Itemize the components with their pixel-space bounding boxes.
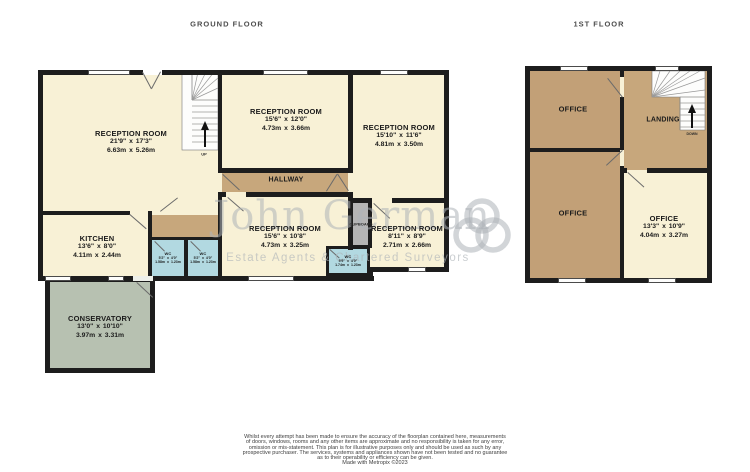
room-label-cupboard: CUPBOARD [349, 222, 372, 227]
stairs-down-icon [650, 66, 707, 136]
room-label-reception2: RECEPTION ROOM 15'6" x 12'0" 4.73m x 3.6… [250, 107, 322, 133]
room-label-landing: LANDING [646, 117, 679, 126]
window [408, 267, 426, 272]
room-label-reception3: RECEPTION ROOM 15'10" x 11'6" 4.81m x 3.… [363, 123, 435, 149]
room-label-reception5: RECEPTION ROOM 8'11" x 8'9" 2.71m x 2.66… [371, 224, 443, 250]
wall-segment [620, 71, 624, 77]
wall-segment [43, 211, 130, 215]
wall-segment [218, 192, 222, 281]
disclaimer: Whilst every attempt has been made to en… [0, 435, 750, 467]
wall-segment [348, 70, 353, 173]
wall-segment [38, 70, 43, 281]
room-label-hallway: HALLWAY [269, 177, 304, 186]
window [655, 66, 679, 71]
room-label-conservatory: CONSERVATORY 13'0" x 10'10" 3.97m x 3.31… [68, 314, 132, 340]
room-label-wc-left2: WC 5'2" x 4'0" 1.58m x 1.23m [190, 251, 216, 265]
wall-segment [620, 166, 624, 278]
exterior-mask [373, 272, 453, 284]
room-label-office-right: OFFICE 13'3" x 10'9" 4.04m x 3.27m [640, 214, 688, 240]
floorplan-page: GROUND FLOOR 1ST FLOOR [0, 0, 750, 472]
window [248, 276, 294, 281]
room-label-office-top: OFFICE [559, 104, 588, 113]
window [560, 66, 588, 71]
room-label-reception4: RECEPTION ROOM 15'6" x 10'8" 4.73m x 3.2… [249, 224, 321, 250]
window [108, 276, 124, 281]
room-label-wc-middle: WC 5'9" x 4'0" 1.74m x 1.23m [335, 254, 361, 268]
wall-segment [525, 278, 712, 283]
stairs-down-label: DOWN [686, 132, 697, 136]
wall-segment [620, 97, 624, 150]
wall-segment [444, 70, 449, 272]
room-label-reception1: RECEPTION ROOM 21'9" x 17'3" 6.63m x 5.2… [95, 129, 167, 155]
wall-segment [38, 276, 374, 281]
disclaimer-credit: Made with Metropix ©2023 [0, 461, 750, 466]
room-label-office-bottom: OFFICE [559, 208, 588, 217]
wall-segment [218, 70, 222, 173]
window [88, 70, 130, 75]
room-fill-wc-lobby [152, 215, 218, 237]
window [648, 278, 676, 283]
wall-segment [222, 192, 226, 197]
stairs-up-icon [180, 70, 220, 154]
wall-segment [246, 192, 352, 197]
window [45, 276, 71, 281]
room-label-kitchen: KITCHEN 13'6" x 8'0" 4.11m x 2.44m [73, 234, 121, 260]
window [263, 70, 308, 75]
wall-segment [647, 168, 707, 173]
wall-segment [222, 168, 352, 173]
wall-segment [530, 148, 620, 152]
wall-segment [392, 198, 444, 203]
ground-floor-title: GROUND FLOOR [190, 20, 264, 29]
wall-segment [148, 211, 152, 281]
stairs-up-label: UP [201, 152, 207, 157]
wall-segment [368, 267, 373, 281]
wall-segment [184, 240, 188, 276]
wall-segment [525, 66, 712, 71]
first-floor-title: 1ST FLOOR [573, 20, 624, 29]
door-opening [133, 276, 153, 281]
wall-segment [707, 66, 712, 283]
room-label-wc-left1: WC 5'2" x 4'0" 1.58m x 1.23m [155, 251, 181, 265]
wall-segment [525, 66, 530, 283]
window [380, 70, 408, 75]
window [558, 278, 586, 283]
watermark-swirl-icon [448, 194, 516, 262]
